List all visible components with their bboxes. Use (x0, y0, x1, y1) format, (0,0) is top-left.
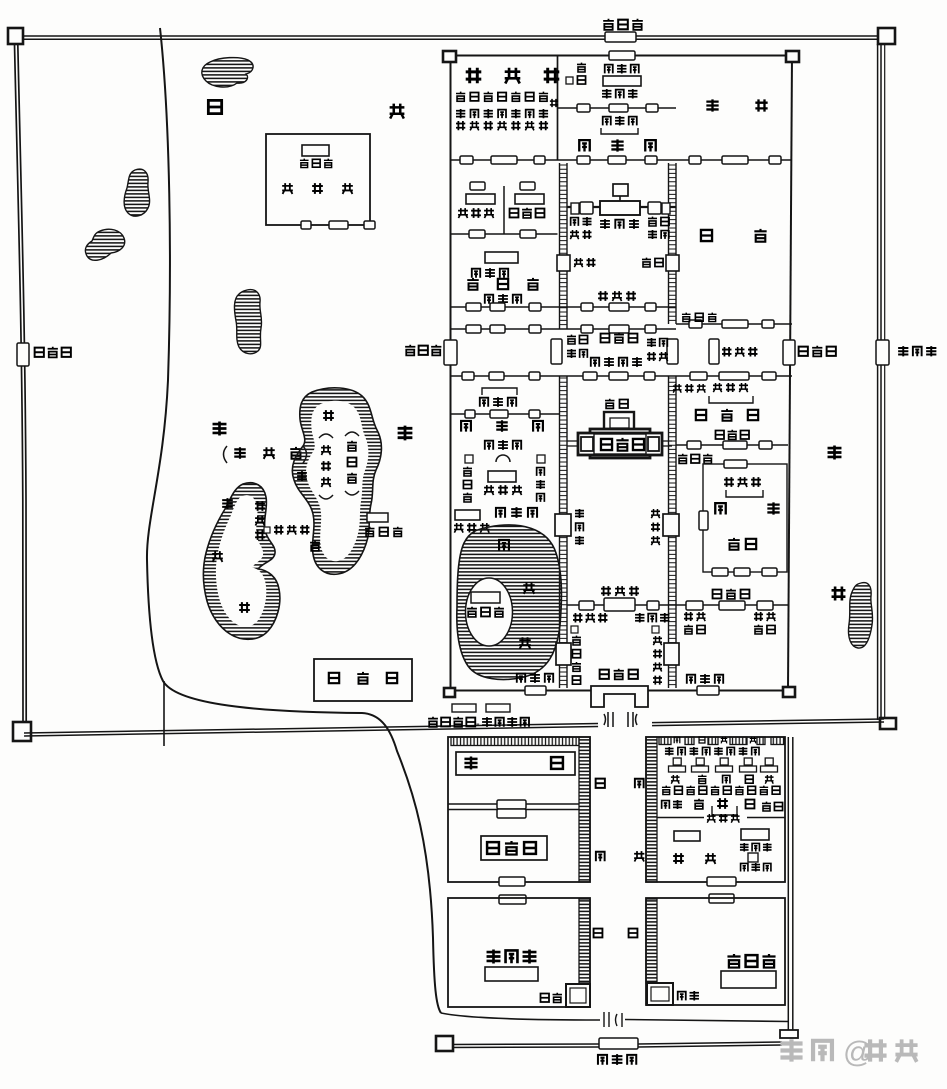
svg-text:-: - (476, 718, 480, 730)
